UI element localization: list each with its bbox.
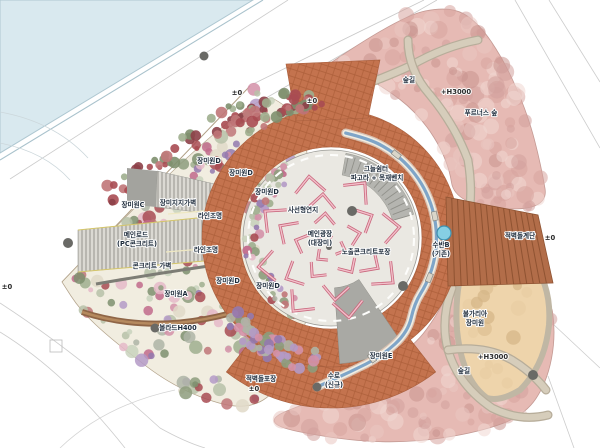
plan-label: 라인조명 (198, 211, 222, 220)
plan-label: 수로 (328, 372, 340, 380)
brick-stair-corridor (446, 197, 553, 286)
bollard-dot (151, 324, 160, 333)
plan-label: 장미원C (121, 200, 144, 209)
plan-label: 숲길 (458, 366, 470, 375)
plan-label: ±0 (2, 283, 13, 291)
plan-label: 장미원D (256, 281, 280, 290)
plan-label: (기존) (432, 249, 450, 258)
plan-label: 적벽돌계단 (505, 231, 535, 240)
plan-label: 장미원D (216, 276, 240, 285)
plan-label: 장미원E (370, 351, 393, 360)
plan-label: 그늘쉼터 (364, 164, 388, 173)
plan-label: 장미원 (466, 318, 484, 327)
water-basin-icon (437, 226, 451, 240)
plan-label: ±0 (249, 385, 260, 393)
plan-label: ±0 (307, 97, 318, 105)
plan-label: 불가리아 (463, 309, 488, 318)
plan-label: 적벽돌포장 (246, 374, 276, 383)
plan-label: ±0 (545, 234, 556, 242)
plan-label: 콘크리트 가벽 (133, 261, 172, 270)
plan-label: 푸르너스 숲 (465, 108, 498, 117)
plan-label: ±0 (232, 89, 243, 97)
plan-label: 라인조명 (194, 245, 218, 254)
landscape-plan-drawing: ±0±0숲길+H3000푸르너스 숲그늘쉼터파고라 + 목재벤치장미원D장미원D… (0, 0, 600, 448)
plan-label: 장미원D (229, 168, 253, 177)
bollard-dot (63, 238, 73, 248)
bollard-dot (313, 383, 322, 392)
plan-label: 노출콘크리트포장 (342, 247, 391, 256)
water-basin-marker (437, 226, 451, 240)
plan-label: 볼라드H400 (159, 323, 197, 332)
plan-label: +H3000 (478, 353, 509, 361)
bollard-dot (200, 52, 209, 61)
plan-label: 숲길 (403, 75, 415, 84)
bollard-dot (398, 281, 408, 291)
plan-label: (신규) (325, 380, 343, 389)
plan-label: (PC콘크리트) (117, 239, 157, 248)
plan-label: 장미원A (164, 289, 188, 298)
plan-label: 장미지지가벽 (160, 198, 196, 207)
plan-label: 장미원D (197, 156, 221, 165)
bollard-dot (347, 206, 357, 216)
plan-label: +H3000 (441, 88, 472, 96)
plan-label: 사선형연지 (288, 205, 318, 214)
plan-label: (대장미) (308, 238, 332, 247)
plan-label: 장미원D (255, 187, 279, 196)
plan-label: 파고라 + 목재벤치 (351, 173, 404, 182)
bollard-dot (528, 370, 538, 380)
plan-label: 메인로드 (124, 230, 148, 239)
plan-label: 수반B (432, 240, 449, 249)
site-plan-canvas: ±0±0숲길+H3000푸르너스 숲그늘쉼터파고라 + 목재벤치장미원D장미원D… (0, 0, 600, 448)
plan-label: 메인광장 (308, 229, 332, 238)
